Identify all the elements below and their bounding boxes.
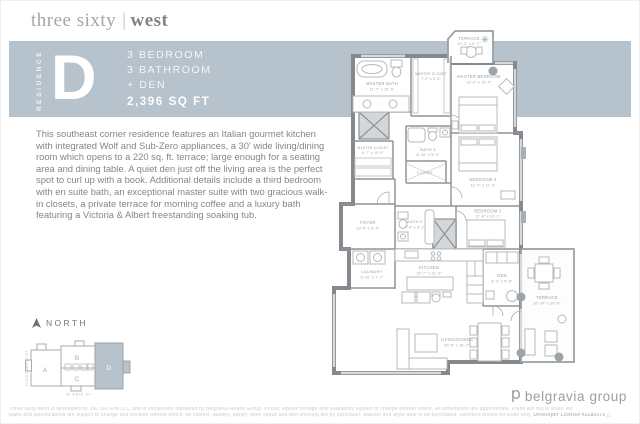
north-indicator: NORTH xyxy=(32,318,88,328)
keyplan-unit-d-nub xyxy=(123,361,130,373)
keyplan-bump-2 xyxy=(75,341,84,346)
room-dims-laundry: 6'-10" x 7'-7" xyxy=(361,276,384,280)
room-label-bath-2: BATH 2 xyxy=(407,219,423,224)
key-plan: A B C D W ERIE ST N KINGSBURY ST xyxy=(25,332,137,396)
room-label-kitchen: KITCHEN xyxy=(419,265,439,270)
room-label-bedroom-2: BEDROOM 2 xyxy=(474,209,502,214)
room-label-laundry: LAUNDRY xyxy=(361,269,382,274)
room-dims-bath-3: 8'-10" x 5'-0" xyxy=(417,153,440,157)
room-dims-den: 8'-0" x 9'-8" xyxy=(492,280,513,284)
room-dims-bedroom-3: 12'-4" x 11'-3" xyxy=(470,184,496,188)
room-label-living-dining: LIVING/DINING xyxy=(441,337,474,342)
column-2 xyxy=(517,293,526,302)
room-dims-bath-2: 7'-4" x 8'-2" xyxy=(405,226,426,230)
room-dims-kitchen: 15'-7" x 12'-0" xyxy=(416,272,442,276)
room-dims-terrace-top: 10'-2" x 6'-7" xyxy=(457,42,481,46)
column-3 xyxy=(517,349,526,358)
room-dims-master-bedroom: 13'-0" x 15'-0" xyxy=(466,81,492,85)
keyplan-bump-3 xyxy=(71,386,81,391)
room-label-bedroom-3: BEDROOM 3 xyxy=(469,177,497,182)
room-label-master-closet-a: MASTER CLOSET xyxy=(415,72,447,76)
flyer-page: three sixty|west RESIDENCE D 3 BEDROOM 3… xyxy=(0,0,640,424)
room-dims-master-bath: 11'-7" x 10'-6" xyxy=(369,88,395,92)
compass-icon: ✳ xyxy=(481,35,489,46)
equal-housing-icon: ⌂ xyxy=(607,413,611,419)
north-arrow-icon xyxy=(32,318,41,328)
room-label-foyer: FOYER xyxy=(360,220,376,225)
developer-license: Developer License #2189373 xyxy=(533,413,605,418)
room-dims-foyer: 10'-6" x 6'-9" xyxy=(356,227,380,231)
belgravia-logo: b belgravia group xyxy=(511,386,627,405)
keyplan-unit-c-label: C xyxy=(75,376,80,383)
column-4 xyxy=(555,353,564,362)
keyplan-unit-a-label: A xyxy=(43,367,48,374)
room-label-terrace-top: TERRACE xyxy=(458,36,480,41)
keyplan-unit-b-label: B xyxy=(75,355,79,362)
belgravia-mark-icon: b xyxy=(511,386,521,405)
room-label-master-bedroom: MASTER BEDROOM xyxy=(457,74,501,79)
keyplan-bump-1 xyxy=(37,344,46,350)
wall-nub-1 xyxy=(521,147,526,159)
mechanical-shaft xyxy=(433,219,456,249)
north-label: NORTH xyxy=(46,318,88,328)
disclaimer-line2-text: plans and specifications are subject to … xyxy=(9,413,532,418)
room-dims-master-closet-a: 7'-2" x 6'-3" xyxy=(421,77,441,81)
room-dims-living-dining: 30'-0" x 19'-2" xyxy=(444,344,470,348)
keyplan-unit-d-label: D xyxy=(107,365,112,372)
wall-nub-2 xyxy=(521,211,526,223)
disclaimer-line2: plans and specifications are subject to … xyxy=(9,413,631,419)
elevator-core xyxy=(359,112,389,139)
keyplan-street-left: N KINGSBURY ST xyxy=(25,350,29,386)
room-dims-master-closet-b: 6'-7" x 10'-9" xyxy=(362,151,384,155)
keyplan-street-bottom: W ERIE ST xyxy=(67,392,92,397)
room-label-master-bath: MASTER BATH xyxy=(366,81,398,86)
room-dims-bedroom-2: 11'-8" x 12'-1" xyxy=(475,215,501,219)
room-label-den: DEN xyxy=(497,273,507,278)
room-label-terrace-main: TERRACE xyxy=(536,295,558,300)
disclaimer: Three Sixty West is developed by 360 360… xyxy=(9,407,631,419)
belgravia-name: belgravia group xyxy=(525,389,627,404)
room-dims-terrace-main: 10'-10" x 20'-0" xyxy=(533,302,561,306)
bedroom2-furniture xyxy=(467,220,505,247)
room-label-bath-3: BATH 3 xyxy=(420,147,436,152)
room-label-closet: CLOSET xyxy=(417,171,434,175)
room-label-master-closet-b: MASTER CLOSET xyxy=(358,146,389,150)
